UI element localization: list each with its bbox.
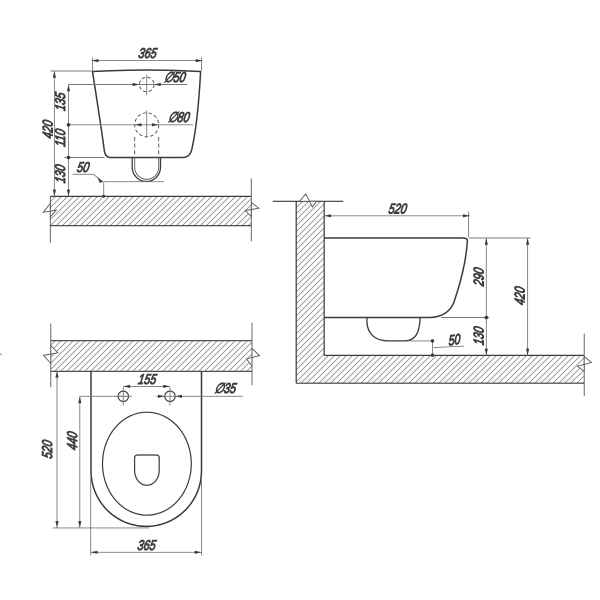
svg-text:520: 520 <box>39 439 56 460</box>
svg-text:420: 420 <box>511 285 528 306</box>
svg-text:130: 130 <box>470 325 487 346</box>
svg-text:520: 520 <box>387 200 408 217</box>
svg-text:∅80: ∅80 <box>167 109 191 126</box>
svg-text:420: 420 <box>39 119 56 140</box>
svg-text:290: 290 <box>470 266 487 288</box>
svg-text:440: 440 <box>63 430 80 451</box>
svg-text:∅50: ∅50 <box>163 68 187 85</box>
svg-text:50: 50 <box>449 330 461 349</box>
svg-text:∅35: ∅35 <box>213 380 238 397</box>
